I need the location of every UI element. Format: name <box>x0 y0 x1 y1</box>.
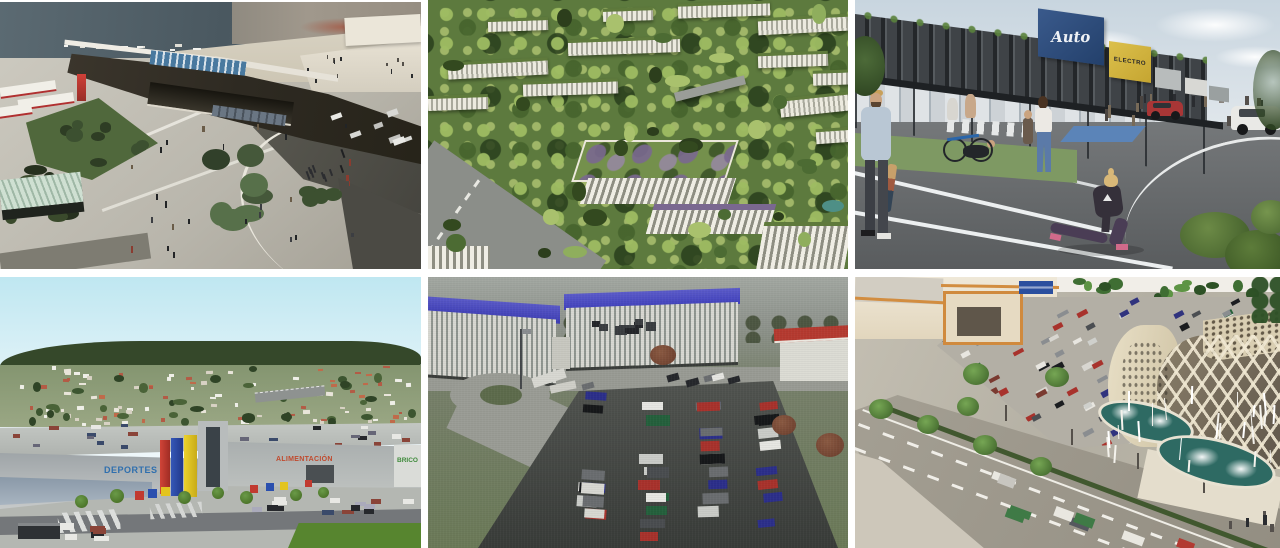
speck <box>269 438 279 441</box>
speck <box>33 382 41 392</box>
speck <box>1164 398 1167 420</box>
speck <box>1077 309 1089 319</box>
speck <box>337 74 339 78</box>
sign-alimentacion: ALIMENTACIÓN <box>276 456 333 463</box>
denim-jacket <box>861 107 891 161</box>
speck <box>1192 96 1195 107</box>
tree <box>318 487 329 498</box>
tree <box>178 491 191 504</box>
speck <box>798 232 811 247</box>
green-lawn <box>288 523 421 548</box>
speck <box>97 441 104 444</box>
facade-white-band <box>394 445 421 487</box>
speck <box>1092 360 1104 369</box>
speck <box>175 44 182 47</box>
speck <box>812 4 826 23</box>
speck <box>90 526 105 532</box>
speck <box>1113 445 1116 463</box>
child-head <box>1024 110 1032 119</box>
cyclist <box>947 98 958 120</box>
speck <box>1120 410 1123 430</box>
bike-wheel <box>969 138 993 162</box>
bike-wheel <box>943 138 967 162</box>
sign-auto: Auto <box>1038 8 1104 65</box>
speck <box>121 424 129 427</box>
speck <box>173 252 175 258</box>
speck <box>131 246 133 252</box>
cloud <box>1155 8 1275 42</box>
speck <box>1252 405 1255 417</box>
speck <box>351 435 359 438</box>
speck <box>1067 386 1079 396</box>
speck <box>330 498 339 503</box>
speck <box>13 434 21 438</box>
speck <box>33 444 40 447</box>
speck <box>998 387 1008 396</box>
roadside-tree <box>1030 457 1052 476</box>
speck <box>290 237 292 242</box>
speck <box>387 108 399 117</box>
speck <box>24 165 47 175</box>
speck <box>165 201 167 207</box>
speck <box>100 405 107 411</box>
speck <box>443 219 461 231</box>
shoe <box>861 230 875 236</box>
speck <box>1128 391 1130 411</box>
speck <box>1057 310 1069 319</box>
speck <box>327 55 329 59</box>
panel-waterfront-station <box>0 0 421 269</box>
speck <box>252 507 262 512</box>
pink-shoe <box>1049 233 1061 241</box>
speck <box>1107 431 1110 448</box>
panel-mall-parking <box>855 277 1280 548</box>
speck <box>59 523 74 530</box>
speck <box>240 437 250 441</box>
speck <box>665 75 690 86</box>
speck <box>121 445 128 449</box>
speck <box>543 209 559 224</box>
speck <box>72 388 84 394</box>
small-sign <box>1209 86 1229 103</box>
speck <box>349 181 351 186</box>
speck <box>1182 280 1192 287</box>
panel-retail-street: Auto ELECTRO <box>855 0 1280 269</box>
speck <box>223 144 225 150</box>
tree <box>75 495 88 508</box>
pink-shoe <box>1116 244 1128 250</box>
speck <box>1218 423 1221 439</box>
speck <box>924 348 933 356</box>
speck <box>1085 322 1095 331</box>
tree-clumps <box>428 0 848 269</box>
speck <box>172 224 174 230</box>
speck <box>1140 96 1143 109</box>
panel-industrial-site <box>428 277 848 548</box>
speck <box>361 414 372 420</box>
speck <box>91 132 105 141</box>
speck <box>242 413 256 422</box>
speck <box>1194 285 1205 295</box>
speck <box>307 68 309 71</box>
speck <box>1176 538 1195 548</box>
speck <box>340 381 349 388</box>
speck <box>374 442 381 446</box>
speck <box>709 53 734 63</box>
speck <box>1263 411 1266 426</box>
speck <box>1108 105 1111 118</box>
roadside-tree <box>917 415 939 434</box>
speck <box>259 212 261 217</box>
speck <box>1229 521 1232 529</box>
photo-edge <box>0 0 421 2</box>
speck <box>1242 422 1245 438</box>
truck <box>18 523 60 539</box>
speck <box>583 209 607 226</box>
parked-cars-right <box>250 497 420 517</box>
photo-collage: Auto ELECTRO <box>0 0 1280 548</box>
speck <box>1129 298 1139 307</box>
store-blue-sign <box>1019 281 1053 294</box>
speck <box>54 406 60 413</box>
speck <box>402 62 404 66</box>
speck <box>273 506 284 512</box>
speck <box>1132 115 1135 126</box>
street-light <box>1071 429 1073 445</box>
speck <box>1191 386 1193 404</box>
tree <box>212 487 224 499</box>
tree <box>110 489 124 503</box>
speck <box>1137 421 1140 442</box>
speck <box>295 235 297 240</box>
speck <box>1048 334 1058 342</box>
child <box>1023 118 1033 144</box>
speck <box>65 534 77 540</box>
speck <box>1084 281 1093 291</box>
speck <box>315 79 317 83</box>
speck <box>188 219 190 224</box>
speck <box>361 426 368 429</box>
tree <box>290 489 302 501</box>
speck <box>1053 506 1075 523</box>
speck <box>1272 405 1274 424</box>
speck <box>285 412 291 421</box>
speck <box>1179 438 1182 460</box>
speck <box>364 509 374 515</box>
speck <box>49 426 59 429</box>
speck <box>649 67 662 84</box>
entrance-glazing <box>957 307 1001 336</box>
speck <box>351 233 353 237</box>
speck <box>1206 282 1219 289</box>
speck <box>1152 403 1153 426</box>
speck <box>1072 337 1082 345</box>
speck <box>190 406 204 412</box>
speck <box>290 197 292 202</box>
upper-building <box>344 14 421 46</box>
speck <box>349 159 352 165</box>
speck <box>1118 425 1120 439</box>
speck <box>1263 515 1267 525</box>
hair-bun <box>1108 168 1114 176</box>
speck <box>322 510 334 516</box>
terrace-people <box>305 54 417 84</box>
speck <box>160 147 162 153</box>
market-canopy <box>0 103 33 119</box>
speck <box>1233 280 1243 292</box>
panel-green-campus <box>428 0 848 269</box>
speck <box>1108 278 1122 290</box>
blue-paving <box>1060 126 1145 142</box>
speck <box>313 426 321 430</box>
photo-grain <box>428 277 848 548</box>
speck <box>408 409 416 418</box>
speck <box>245 219 247 224</box>
speck <box>987 387 999 397</box>
speck <box>997 473 1017 489</box>
speck <box>572 182 585 202</box>
speck <box>128 432 137 436</box>
sign-electro: ELECTRO <box>1109 41 1151 83</box>
speck <box>1270 450 1272 463</box>
speck <box>368 431 376 435</box>
speck <box>647 127 660 136</box>
speck <box>48 211 68 222</box>
car-wheel <box>1171 111 1180 120</box>
roadside-tree <box>869 399 893 419</box>
speck <box>563 246 586 258</box>
speck <box>131 165 133 169</box>
bent-leg <box>1108 217 1129 248</box>
speck <box>1254 451 1257 467</box>
speck <box>557 9 571 27</box>
speck <box>139 383 147 393</box>
speck <box>614 140 627 157</box>
yellow-cube <box>161 487 170 496</box>
speck <box>87 436 94 439</box>
speck <box>1179 322 1189 331</box>
speck <box>748 120 766 139</box>
speck <box>351 505 360 511</box>
sign-auto-label: Auto <box>1051 28 1091 46</box>
speck <box>1187 460 1190 472</box>
speck <box>688 222 711 238</box>
speck <box>193 48 200 50</box>
speck <box>166 140 168 146</box>
blue-pillar <box>171 438 183 496</box>
lot-tree <box>1045 367 1069 387</box>
speck <box>210 375 221 383</box>
speck <box>1270 524 1274 532</box>
speck <box>397 58 399 62</box>
roadside-tree <box>973 435 997 455</box>
speck <box>386 63 388 67</box>
blue-cube <box>148 489 157 498</box>
leg <box>878 160 888 234</box>
tree <box>240 491 253 504</box>
speck <box>1120 309 1131 318</box>
speck <box>151 217 153 222</box>
plaza-people <box>118 118 358 258</box>
speck <box>773 212 784 221</box>
speck <box>960 350 970 358</box>
lot-tree <box>963 363 989 385</box>
speck <box>942 362 954 371</box>
speck <box>679 141 698 152</box>
speck <box>1192 310 1202 318</box>
speck <box>91 425 101 429</box>
speck <box>156 194 158 200</box>
speck <box>47 410 55 418</box>
red-pillar <box>160 440 170 494</box>
speck <box>1230 298 1240 306</box>
speck <box>117 413 129 420</box>
girl-stretching <box>1050 168 1160 268</box>
arm <box>1101 212 1110 233</box>
speck <box>340 57 342 60</box>
speck <box>1245 96 1250 105</box>
woman-top <box>1035 108 1052 134</box>
crosswalk <box>150 502 203 520</box>
speck <box>1053 322 1064 331</box>
speck <box>94 536 109 541</box>
speck <box>624 126 634 142</box>
speck <box>257 124 259 130</box>
speck <box>358 436 366 440</box>
speck <box>374 121 385 129</box>
speck <box>63 413 70 421</box>
speck <box>170 49 175 51</box>
speck <box>403 499 415 505</box>
lot-tree <box>957 397 979 416</box>
car-wheel <box>1151 111 1160 120</box>
speck <box>66 128 83 141</box>
speck <box>1136 103 1139 112</box>
sign-electro-label: ELECTRO <box>1114 57 1146 68</box>
sign-brico: BRICO <box>397 457 418 464</box>
speck <box>1122 531 1146 547</box>
speck <box>5 211 17 224</box>
palm-corner <box>1251 277 1280 323</box>
tower-glazing <box>206 427 220 487</box>
red-cube <box>305 480 312 487</box>
speck <box>443 60 464 71</box>
speck <box>1144 94 1147 102</box>
speck <box>392 434 401 438</box>
speck <box>606 14 624 33</box>
leg <box>865 160 875 232</box>
speck <box>100 122 112 132</box>
speck <box>930 348 943 358</box>
town-trees <box>0 365 421 427</box>
fountain-jets <box>1099 385 1279 475</box>
speck <box>654 33 672 43</box>
blue-cube <box>266 483 274 491</box>
street-light <box>1005 405 1007 421</box>
speck <box>167 246 169 251</box>
speck <box>1087 337 1098 346</box>
shadow <box>1058 244 1144 256</box>
speck <box>36 408 43 416</box>
speck <box>1174 310 1185 319</box>
speck <box>446 234 466 253</box>
speck <box>391 69 393 73</box>
speck <box>72 120 83 130</box>
man-with-skateboard <box>857 88 903 248</box>
speck <box>249 366 257 372</box>
speck <box>411 74 413 78</box>
speck <box>718 209 731 220</box>
sign-deportes: DEPORTES <box>104 465 158 475</box>
shoe <box>877 233 891 239</box>
speck <box>1259 405 1263 429</box>
speck <box>285 134 287 140</box>
speck <box>173 399 187 404</box>
yellow-pillar <box>184 435 197 497</box>
car-wheel <box>1237 124 1248 135</box>
speck <box>334 60 335 64</box>
red-car-window <box>1153 103 1171 108</box>
speck <box>374 373 382 383</box>
cyclist <box>965 94 976 118</box>
speck <box>365 396 377 402</box>
yellow-cube <box>280 482 288 490</box>
speck <box>714 246 726 258</box>
speck <box>1013 348 1025 357</box>
red-cube <box>135 491 144 500</box>
speck <box>260 204 262 210</box>
speck <box>1246 518 1249 528</box>
small-sign <box>1185 77 1207 96</box>
speck <box>1055 350 1065 358</box>
speck <box>277 501 287 506</box>
speck <box>930 373 942 383</box>
speck <box>114 375 125 382</box>
speck <box>169 412 178 417</box>
speck <box>538 248 551 259</box>
speck <box>516 97 530 111</box>
red-cube <box>250 485 258 493</box>
speck <box>346 175 348 181</box>
plaza-people <box>1225 507 1280 537</box>
red-monument <box>77 74 86 101</box>
panel-retail-warehouse: DEPORTES ALIMENTACIÓN BRICO <box>0 277 421 548</box>
small-sign <box>1155 67 1181 91</box>
speck <box>1237 392 1238 407</box>
speck <box>989 375 1000 384</box>
speck <box>402 438 410 442</box>
speck <box>985 401 995 409</box>
speck <box>773 95 787 109</box>
speck <box>1099 282 1111 291</box>
speck <box>243 383 254 389</box>
speck <box>1082 427 1094 437</box>
speck <box>371 499 381 503</box>
speck <box>345 124 347 128</box>
speck <box>202 126 205 132</box>
speck <box>1055 400 1065 408</box>
